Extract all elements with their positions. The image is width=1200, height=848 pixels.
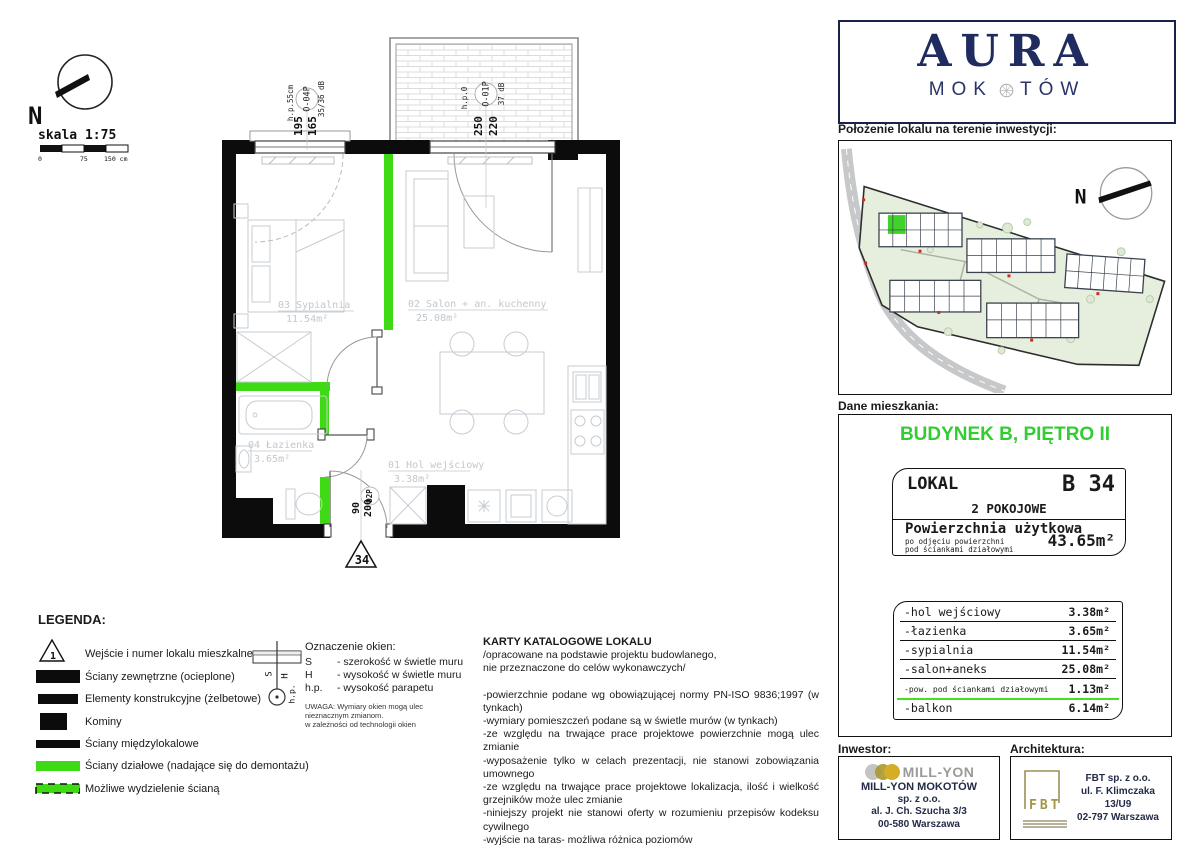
brand-sub-left: MOK [929, 79, 993, 101]
room-labels: 03 Sypialnia 11.54m² 02 Salon + an. kuch… [248, 299, 548, 485]
compass-and-scale: N skala 1:75 0 75 150 cm [20, 30, 170, 170]
window-key-title: Oznaczenie okien: [305, 641, 396, 653]
catalog-notes: KARTY KATALOGOWE LOKALU /opracowane na p… [483, 636, 819, 848]
legend-item-possible-wall: Możliwe wydzielenie ścianą [85, 783, 220, 795]
catalog-bullet: -ze względu na trwające prace projektowe… [483, 728, 819, 754]
building-title: BUDYNEK B, PIĘTRO II [838, 424, 1172, 446]
window-key-h: H [305, 669, 313, 681]
fbt-logo-text: FBT [1029, 798, 1061, 813]
legend-item-structural: Elementy konstrukcyjne (żelbetowe) [85, 693, 261, 705]
investor-logo: MILL-YON [839, 763, 999, 781]
room-value: 6.14m² [1068, 701, 1110, 715]
building-5 [987, 303, 1079, 338]
catalog-notes-title: KARTY KATALOGOWE LOKALU [483, 636, 819, 649]
room-name: -salon+aneks [904, 662, 987, 676]
investor-line-4: 00-580 Warszawa [839, 819, 999, 832]
room-label-lazienka: 04 Łazienka [248, 440, 314, 451]
scale-tick-150: 150 cm [104, 155, 128, 163]
gem-icon [999, 83, 1014, 98]
unit-entry-marker: 34 [346, 470, 376, 567]
rooms-table: -hol wejściowy 3.38m² -łazienka 3.65m² -… [893, 601, 1123, 720]
room-value: 3.38m² [1068, 605, 1110, 619]
building-2 [967, 239, 1055, 273]
lokal-type: 2 POKOJOWE [893, 501, 1125, 516]
architecture-label: Architektura: [1010, 742, 1085, 756]
brand-logo-box: AURA MOK TÓW [838, 20, 1176, 124]
legend-item-partition: Ściany działowe (nadające się do demonta… [85, 760, 309, 772]
building-4 [890, 280, 981, 312]
north-label: N [28, 102, 42, 130]
apartment-section-label: Dane mieszkania: [838, 399, 939, 413]
compass-needle [55, 74, 90, 98]
legend-wall-partition [36, 761, 80, 771]
row-divider [900, 678, 1116, 679]
architect-line-1: FBT sp. z o.o. [1071, 772, 1165, 785]
site-compass-needle [1098, 181, 1151, 204]
window-id: O-01P [482, 81, 492, 107]
architect-line-3: 02-797 Warszawa [1071, 811, 1165, 824]
area-subnote-2: pod ściankami działowymi [905, 545, 1013, 554]
window-key-note-3: w zależności od technologii okien [305, 720, 416, 729]
catalog-sheet: N skala 1:75 0 75 150 cm [0, 0, 1200, 848]
window-key-hp: h.p. [305, 682, 323, 694]
window-key-note-2: nieznacznym zmianom. [305, 711, 383, 720]
window-key-note-1: UWAGA: Wymiary okien mogą ulec [305, 702, 423, 711]
legend-item-interunit: Ściany międzylokalowe [85, 738, 199, 750]
room-row-hol: -hol wejściowy 3.38m² [904, 605, 1110, 619]
legend-item-external: Ściany zewnętrzne (ocieplone) [85, 671, 235, 683]
legend-wall-structural [38, 694, 78, 704]
room-name: -sypialnia [904, 643, 973, 657]
window-dim-inner: 220 [487, 116, 500, 136]
window-dim-outer: 250 [472, 116, 485, 136]
row-divider [900, 640, 1116, 641]
fbt-logo-icon: FBT [1019, 767, 1063, 813]
brand-name: AURA [840, 26, 1174, 77]
room-name: -pow. pod ściankami działowymi [904, 682, 1049, 696]
building-1 [879, 213, 962, 247]
legend-item-chimney: Kominy [85, 716, 122, 728]
room-area-lazienka: 3.65m² [254, 454, 290, 465]
area-value: 43.65m² [1048, 531, 1115, 550]
room-row-salon: -salon+aneks 25.08m² [904, 662, 1110, 676]
brand-sub-right: TÓW [1020, 79, 1085, 101]
lokal-box: LOKAL B 34 2 POKOJOWE Powierzchnia użytk… [892, 468, 1126, 556]
millyon-circles-icon [864, 763, 900, 781]
catalog-bullet: -powierzchnie podane wg obowiązującej no… [483, 689, 819, 715]
catalog-bullet: -wyjście na taras- możliwa różnica pozio… [483, 834, 819, 847]
room-label-sypialnia: 03 Sypialnia [278, 300, 350, 311]
legend-item-entry: Wejście i numer lokalu mieszkalnego [85, 648, 265, 660]
scale-tick-75: 75 [80, 155, 88, 163]
architect-box: FBT FBT sp. z o.o. ul. F. Klimczaka 13/U… [1010, 756, 1172, 840]
catalog-notes-sub2: nie przeznaczone do celów wykonawczych/ [483, 662, 819, 675]
entry-door-width: 90 [351, 502, 362, 514]
window-sill: h.p.0 [460, 86, 469, 109]
catalog-bullets: -powierzchnie podane wg obowiązującej no… [483, 689, 819, 848]
investor-line-1: MILL-YON MOKOTÓW [839, 781, 999, 794]
window-sill: h.p.55cm [286, 84, 295, 121]
window-acoustic: 37 dB [497, 82, 506, 105]
scale-label: skala 1:75 [38, 128, 116, 143]
room-name: -łazienka [904, 624, 966, 638]
lokal-unit-id: B 34 [1062, 472, 1115, 497]
legend-title: LEGENDA: [38, 612, 106, 627]
window-acoustic: 35/36 dB [317, 80, 326, 117]
entry-door-height: 200 [363, 499, 374, 517]
site-plan: N [839, 141, 1170, 393]
fbt-logo-subtext [1019, 820, 1071, 828]
room-row-balkon: -balkon 6.14m² [904, 701, 1110, 715]
window-dim-outer: 195 [292, 116, 305, 136]
room-name: -balkon [904, 701, 952, 715]
room-value: 1.13m² [1068, 682, 1110, 696]
room-value: 11.54m² [1062, 643, 1110, 657]
room-row-partition-walls: -pow. pod ściankami działowymi 1.13m² [904, 682, 1110, 696]
scale-bar: 0 75 150 cm [38, 145, 128, 163]
window-key-diagram: S H h.p. [245, 638, 305, 713]
catalog-notes-sub1: /opracowane na podstawie projektu budowl… [483, 649, 819, 662]
investor-box: MILL-YON MILL-YON MOKOTÓW sp. z o.o. al.… [838, 756, 1000, 840]
site-compass: N [1075, 168, 1152, 219]
catalog-bullet: -wymiary pomieszczeń podane są w świetle… [483, 715, 819, 728]
bedroom-window [250, 131, 350, 242]
entry-door-annotation: D2P 90 200 [351, 487, 379, 517]
lokal-label: LOKAL [907, 474, 958, 494]
bathroom-door [318, 429, 374, 477]
room-area-sypialnia: 11.54m² [286, 314, 328, 325]
radiators [262, 157, 532, 164]
legend-wall-interunit [36, 740, 80, 748]
site-plan-box: N [838, 140, 1172, 395]
investor-line-3: al. J. Ch. Szucha 3/3 [839, 806, 999, 819]
room-name: -hol wejściowy [904, 605, 1001, 619]
window-id: O-04P [303, 86, 313, 112]
lokal-divider [893, 519, 1125, 520]
site-north-label: N [1075, 185, 1087, 208]
diagram-h-label: H [281, 673, 291, 678]
scale-tick-0: 0 [38, 155, 42, 163]
row-divider-green [897, 698, 1119, 700]
room-value: 25.08m² [1062, 662, 1110, 676]
room-label-salon: 02 Salon + an. kuchenny [408, 299, 546, 310]
site-plan-title: Położenie lokalu na terenie inwestycji: [838, 122, 1057, 136]
architect-line-2: ul. F. Klimczaka 13/U9 [1071, 785, 1165, 811]
window-key-s-desc: - szerokość w świetle muru [337, 656, 463, 668]
catalog-bullet: -niniejszy projekt nie stanowi oferty w … [483, 807, 819, 833]
walls-partition-green [236, 154, 393, 524]
catalog-bullet: -wyposażenie tylko w celach prezentacji,… [483, 755, 819, 781]
fbt-logo: FBT [1019, 767, 1071, 829]
room-row-sypialnia: -sypialnia 11.54m² [904, 643, 1110, 657]
unit-number: 34 [355, 553, 369, 567]
room-area-salon: 25.08m² [416, 313, 458, 324]
window-key-s: S [305, 656, 312, 668]
floor-plan: 03 Sypialnia 11.54m² 02 Salon + an. kuch… [180, 20, 650, 580]
window-key-hp-desc: - wysokość parapetu [337, 682, 433, 694]
legend-chimney [40, 713, 67, 730]
brand-subtitle: MOK TÓW [840, 79, 1174, 101]
legend-symbols: 1 [30, 636, 80, 806]
catalog-bullet: -ze względu na trwające prace projektowe… [483, 781, 819, 807]
architect-address: FBT sp. z o.o. ul. F. Klimczaka 13/U9 02… [1071, 772, 1171, 824]
investor-label: Inwestor: [838, 742, 891, 756]
highlighted-unit [888, 215, 906, 234]
window-key-h-desc: - wysokość w świetle muru [337, 669, 461, 681]
room-label-hol: 01 Hol wejściowy [388, 459, 484, 471]
row-divider [900, 659, 1116, 660]
room-area-hol: 3.38m² [394, 474, 430, 485]
room-row-lazienka: -łazienka 3.65m² [904, 624, 1110, 638]
investor-logo-text: MILL-YON [903, 764, 975, 780]
legend-possible-wall [36, 784, 80, 793]
diagram-s-label: S [265, 671, 275, 676]
investor-line-2: sp. z o.o. [839, 794, 999, 807]
legend-wall-external [36, 670, 80, 683]
bedroom-door [327, 330, 382, 394]
building-3 [1065, 254, 1145, 293]
room-value: 3.65m² [1068, 624, 1110, 638]
row-divider [900, 621, 1116, 622]
window-dim-inner: 165 [306, 116, 319, 136]
legend-entry-number: 1 [50, 651, 56, 662]
diagram-hp-label: h.p. [288, 684, 297, 703]
